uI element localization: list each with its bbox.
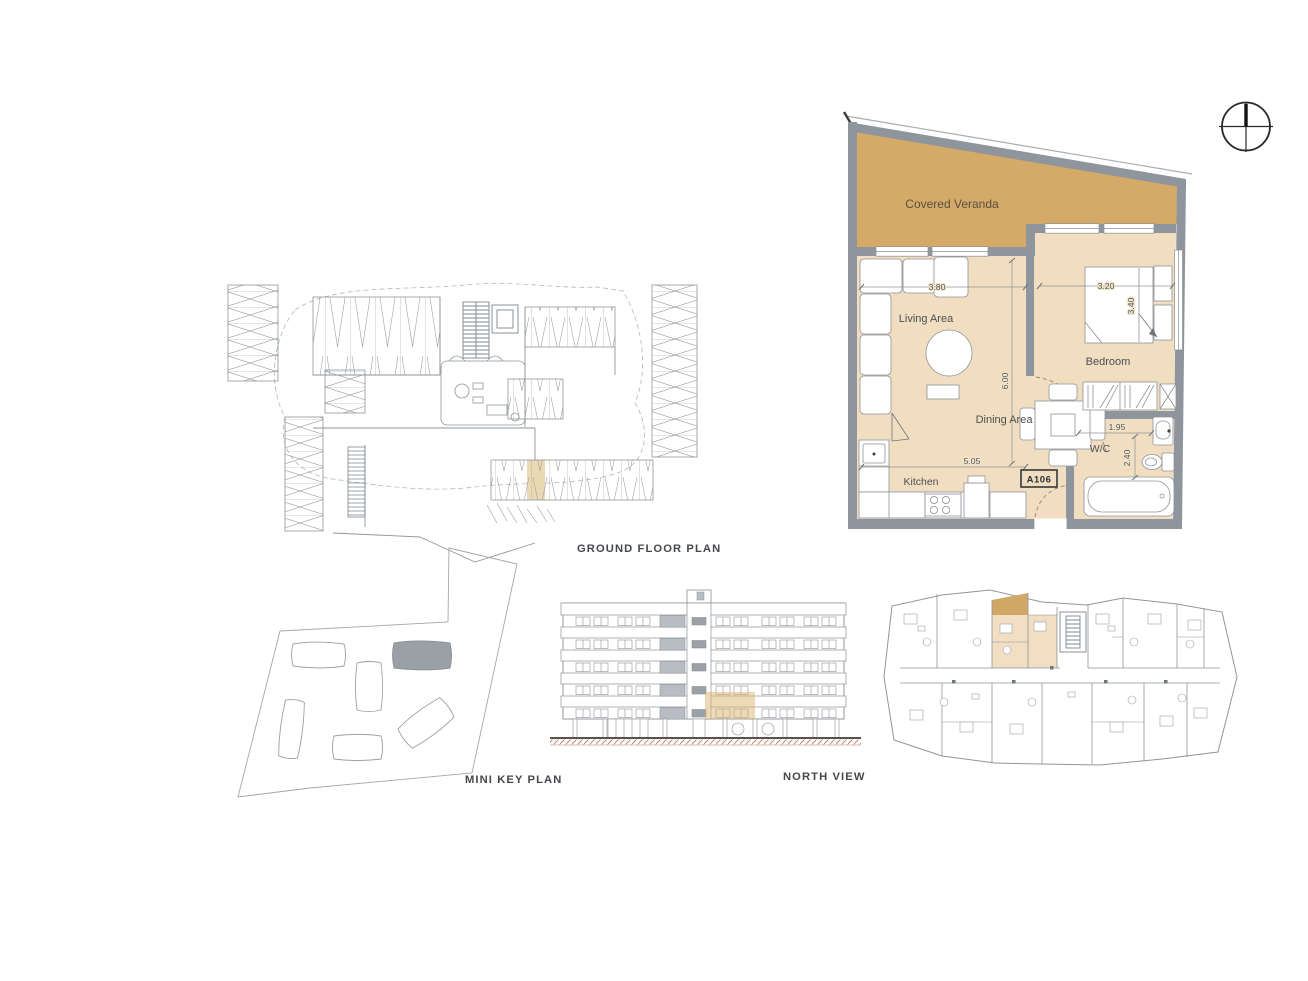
- entrance-opening: [1034, 519, 1067, 530]
- toilet: [1142, 453, 1174, 471]
- stove: [925, 494, 961, 516]
- washbasin: [1153, 417, 1173, 445]
- ground-floor-columns: [573, 719, 839, 738]
- ground-floor-plan: GROUND FLOOR PLAN: [225, 275, 725, 565]
- room-label-dining-area: Dining Area: [976, 414, 1034, 426]
- room-label-kitchen: Kitchen: [903, 476, 938, 488]
- wardrobe: [1083, 382, 1157, 410]
- dim-bedroom-depth: 3.40: [1126, 297, 1136, 314]
- dim-wc-depth: 2.40: [1122, 449, 1132, 466]
- room-label-wc: W/C: [1090, 443, 1111, 455]
- core-elevator: [492, 305, 518, 333]
- highlighted-unit-plan: [992, 615, 1057, 668]
- building-facade: [561, 590, 846, 738]
- dim-living-depth: 6.00: [1000, 372, 1010, 389]
- dim-bedroom-width: 3.20: [1098, 281, 1115, 291]
- bathtub: [1084, 477, 1174, 516]
- plan-sheet: 3.80 3.20 3.40 6.00 5.05 1.95 2.40 Cover…: [0, 0, 1308, 981]
- ground-floor-plan-caption: GROUND FLOOR PLAN: [577, 543, 721, 555]
- closet-box: [1160, 384, 1176, 409]
- core-stairs: [463, 302, 489, 358]
- north-view-caption: NORTH VIEW: [783, 771, 865, 783]
- dim-wc-width: 1.95: [1109, 422, 1126, 432]
- compass-north-icon: [1212, 92, 1282, 162]
- room-label-bedroom: Bedroom: [1086, 356, 1131, 368]
- highlighted-unit-elevation: [705, 692, 755, 719]
- apartment-floor-plan: 3.80 3.20 3.40 6.00 5.05 1.95 2.40 Cover…: [830, 100, 1210, 540]
- tv-bench: [927, 385, 959, 399]
- ground-hatch: [550, 740, 861, 745]
- coffee-table: [926, 330, 972, 376]
- slope-hatch: [487, 503, 555, 523]
- north-elevation: NORTH VIEW: [548, 588, 863, 788]
- dim-living-width: 3.80: [929, 282, 946, 292]
- unit-number-label: A106: [1027, 475, 1052, 486]
- dim-kitchen-dining-width: 5.05: [964, 456, 981, 466]
- parking-row-bottom: [491, 460, 653, 500]
- fridge: [964, 476, 989, 518]
- highlighted-building: [393, 641, 452, 670]
- unit-number-badge: A106: [1021, 470, 1057, 487]
- room-label-living-area: Living Area: [899, 313, 954, 325]
- room-label-covered-veranda: Covered Veranda: [905, 197, 999, 211]
- typical-floor-plan: [882, 582, 1240, 772]
- mini-key-plan: MINI KEY PLAN: [230, 545, 565, 810]
